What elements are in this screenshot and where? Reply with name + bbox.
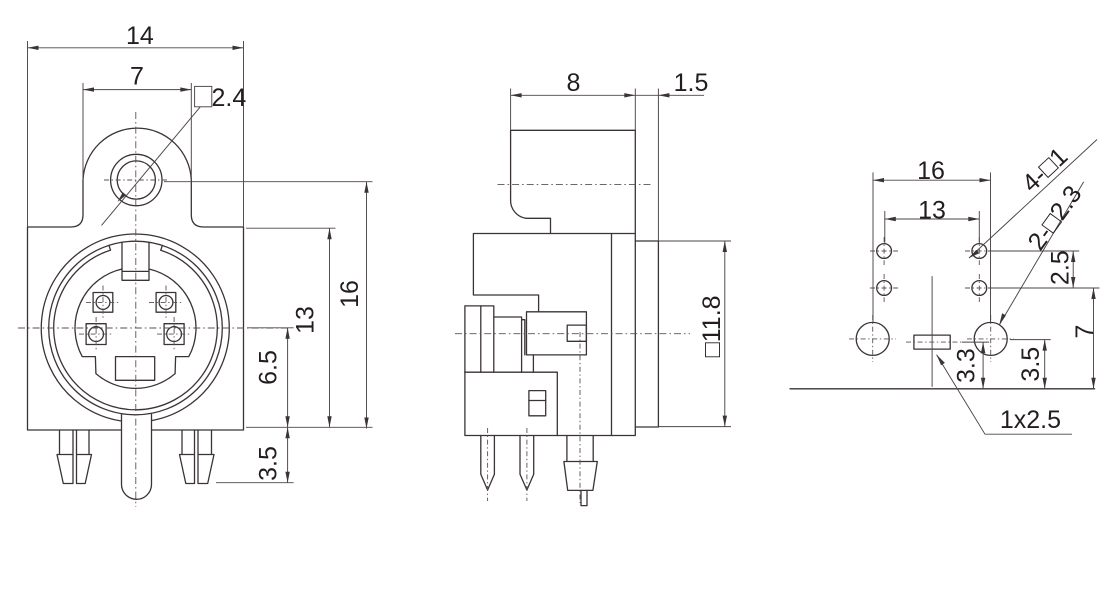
svg-text:13: 13 — [292, 306, 320, 334]
svg-text:8: 8 — [567, 69, 581, 97]
svg-text:1.5: 1.5 — [674, 69, 709, 97]
svg-text:2.4: 2.4 — [212, 84, 247, 112]
svg-text:7: 7 — [1071, 325, 1099, 339]
svg-text:13: 13 — [918, 197, 946, 225]
svg-text:3.3: 3.3 — [953, 348, 981, 383]
svg-text:16: 16 — [336, 280, 364, 308]
svg-text:2.5: 2.5 — [1047, 250, 1075, 285]
svg-text:6.5: 6.5 — [255, 350, 283, 385]
svg-text:14: 14 — [126, 22, 154, 50]
svg-text:3.5: 3.5 — [1017, 347, 1045, 382]
svg-text:3.5: 3.5 — [255, 446, 283, 481]
svg-text:7: 7 — [130, 63, 144, 91]
svg-text:1x2.5: 1x2.5 — [1000, 406, 1061, 434]
svg-text:16: 16 — [917, 157, 945, 185]
svg-text:□11.8: □11.8 — [698, 295, 726, 357]
